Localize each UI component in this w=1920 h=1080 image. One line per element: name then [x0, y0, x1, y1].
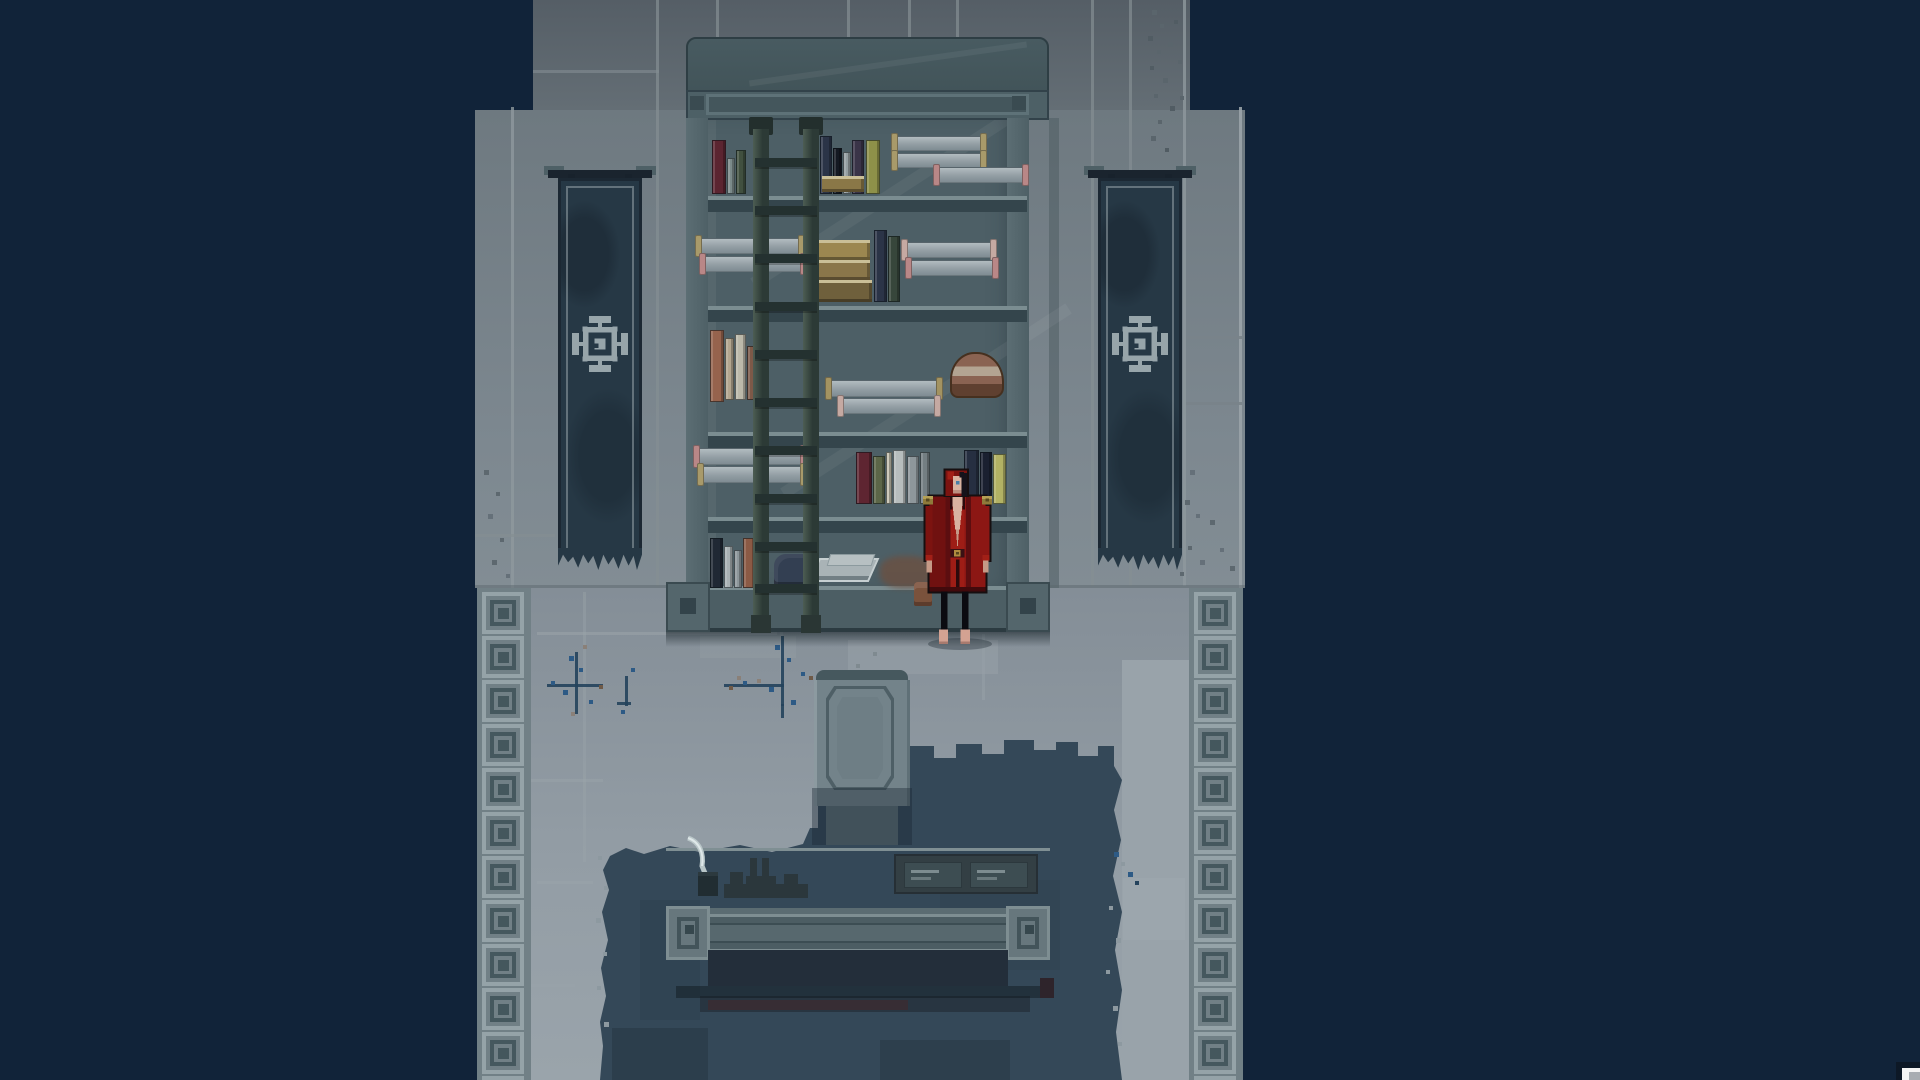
- floor-tile: [1194, 900, 1236, 942]
- shelf-cornice-panel: [706, 94, 1029, 115]
- banner-tassels: [558, 548, 642, 570]
- floor-tile: [1194, 1076, 1236, 1080]
- corner-ui-fragment-grey: [1909, 1072, 1920, 1080]
- floor-tile: [1194, 724, 1236, 766]
- wall-banner-right: [1098, 164, 1182, 576]
- stone-chair: [812, 670, 912, 845]
- floor-tile: [1194, 636, 1236, 678]
- floor-tile: [1194, 812, 1236, 854]
- floor-tile: [1194, 856, 1236, 898]
- cornice-nub: [690, 96, 704, 110]
- ladder-rung: [755, 398, 817, 407]
- desk-blotter: [894, 854, 1038, 894]
- desk-end-left: [666, 906, 710, 960]
- desk-front-panel: [686, 914, 1030, 952]
- banner-emblem-icon: [1112, 316, 1168, 372]
- floor-tile: [1194, 944, 1236, 986]
- paper-stack[interactable]: [970, 862, 1028, 888]
- banner-emblem-icon: [572, 316, 628, 372]
- ladder-rung: [755, 158, 817, 167]
- inkwell[interactable]: [698, 872, 718, 896]
- floor-tile: [482, 768, 524, 810]
- game-viewport: [0, 0, 1920, 1080]
- floor-tile: [482, 1076, 524, 1080]
- floor-tile: [482, 944, 524, 986]
- floor-tile: [1194, 988, 1236, 1030]
- candelabra-silhouette: [746, 876, 776, 886]
- base-nub: [680, 598, 696, 614]
- ladder-rung: [755, 302, 817, 311]
- cornice-nub: [1012, 96, 1026, 110]
- floor-tile: [482, 636, 524, 678]
- floor-tile: [1194, 768, 1236, 810]
- ladder-rung: [755, 446, 817, 455]
- floor-tile: [482, 988, 524, 1030]
- base-nub: [1020, 598, 1036, 614]
- floor-border-tiles-left: [477, 588, 531, 1080]
- floor-tile: [482, 680, 524, 722]
- ladder-rung: [755, 350, 817, 359]
- banner-tassels: [1098, 548, 1182, 570]
- desk-end-right: [1006, 906, 1050, 960]
- floor-tile: [482, 724, 524, 766]
- floor-tile: [482, 856, 524, 898]
- ladder-foot: [801, 615, 821, 633]
- paper-stack[interactable]: [904, 862, 962, 888]
- player-character[interactable]: [919, 467, 996, 650]
- floor-tile: [482, 812, 524, 854]
- banner-rod: [1088, 170, 1192, 178]
- ladder-rung: [755, 254, 817, 263]
- ladder-foot: [751, 615, 771, 633]
- shelf-column-left: [686, 118, 708, 588]
- floor-tile: [482, 900, 524, 942]
- ladder-rung: [755, 494, 817, 503]
- shelf-cornice: [686, 37, 1049, 93]
- floor-tile: [1194, 592, 1236, 634]
- floor-border-tiles-right: [1189, 588, 1243, 1080]
- ladder-rung: [755, 206, 817, 215]
- ladder-rung: [755, 542, 817, 551]
- floor-tile: [1194, 1032, 1236, 1074]
- floor-tile: [1194, 680, 1236, 722]
- candelabra-silhouette: [730, 872, 743, 886]
- desk-shadow: [676, 986, 1040, 998]
- ladder-rung: [755, 584, 817, 593]
- wall-banner-left: [558, 164, 642, 576]
- chair-panel-core: [837, 697, 883, 779]
- banner-rod: [548, 170, 652, 178]
- writing-desk[interactable]: [666, 846, 1050, 996]
- floor-tile: [482, 592, 524, 634]
- candelabra-silhouette: [784, 874, 798, 886]
- floor-tile: [482, 1032, 524, 1074]
- chair-shade: [812, 788, 912, 845]
- desk-kneehole-shadow: [708, 950, 1008, 986]
- floor-light-strip: [1122, 660, 1189, 1080]
- ladder[interactable]: [749, 117, 823, 633]
- candelabra-silhouette: [724, 884, 808, 898]
